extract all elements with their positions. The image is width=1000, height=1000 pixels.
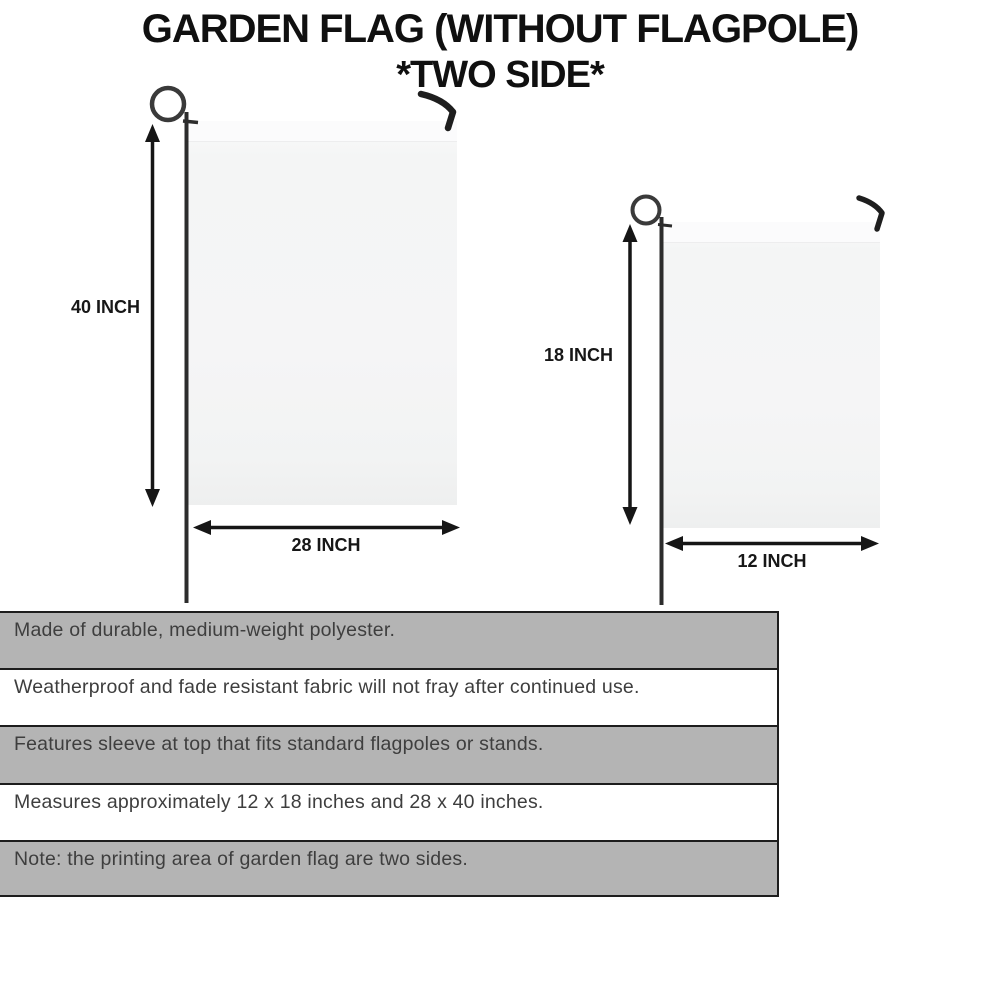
diagram-overlay	[0, 0, 1000, 620]
feature-row: Features sleeve at top that fits standar…	[0, 725, 777, 782]
feature-row: Made of durable, medium-weight polyester…	[0, 611, 777, 668]
small-flag-height-arrow	[623, 224, 638, 525]
large-flag-width-label: 28 INCH	[216, 535, 436, 556]
small-flag-width-label: 12 INCH	[662, 551, 882, 572]
feature-row: Measures approximately 12 x 18 inches an…	[0, 783, 777, 840]
large-flagpole-loop	[152, 88, 184, 120]
small-flagpole-loop-tail	[658, 225, 672, 227]
feature-row: Note: the printing area of garden flag a…	[0, 840, 777, 897]
small-flag-height-label: 18 INCH	[513, 345, 613, 366]
small-flag-width-arrow	[665, 536, 879, 551]
small-flagpole-loop	[633, 197, 660, 224]
large-flagpole-loop-tail	[183, 121, 198, 123]
large-flag-height-label: 40 INCH	[40, 297, 140, 318]
small-flag-hanger-hook-icon	[859, 198, 882, 229]
large-flag-width-arrow	[193, 520, 460, 535]
garden-flag-infographic: GARDEN FLAG (WITHOUT FLAGPOLE) *TWO SIDE…	[0, 0, 1000, 1000]
large-flag-hanger-hook-icon	[421, 94, 453, 128]
large-flag-height-arrow	[145, 124, 160, 507]
feature-list: Made of durable, medium-weight polyester…	[0, 611, 779, 897]
feature-row: Weatherproof and fade resistant fabric w…	[0, 668, 777, 725]
